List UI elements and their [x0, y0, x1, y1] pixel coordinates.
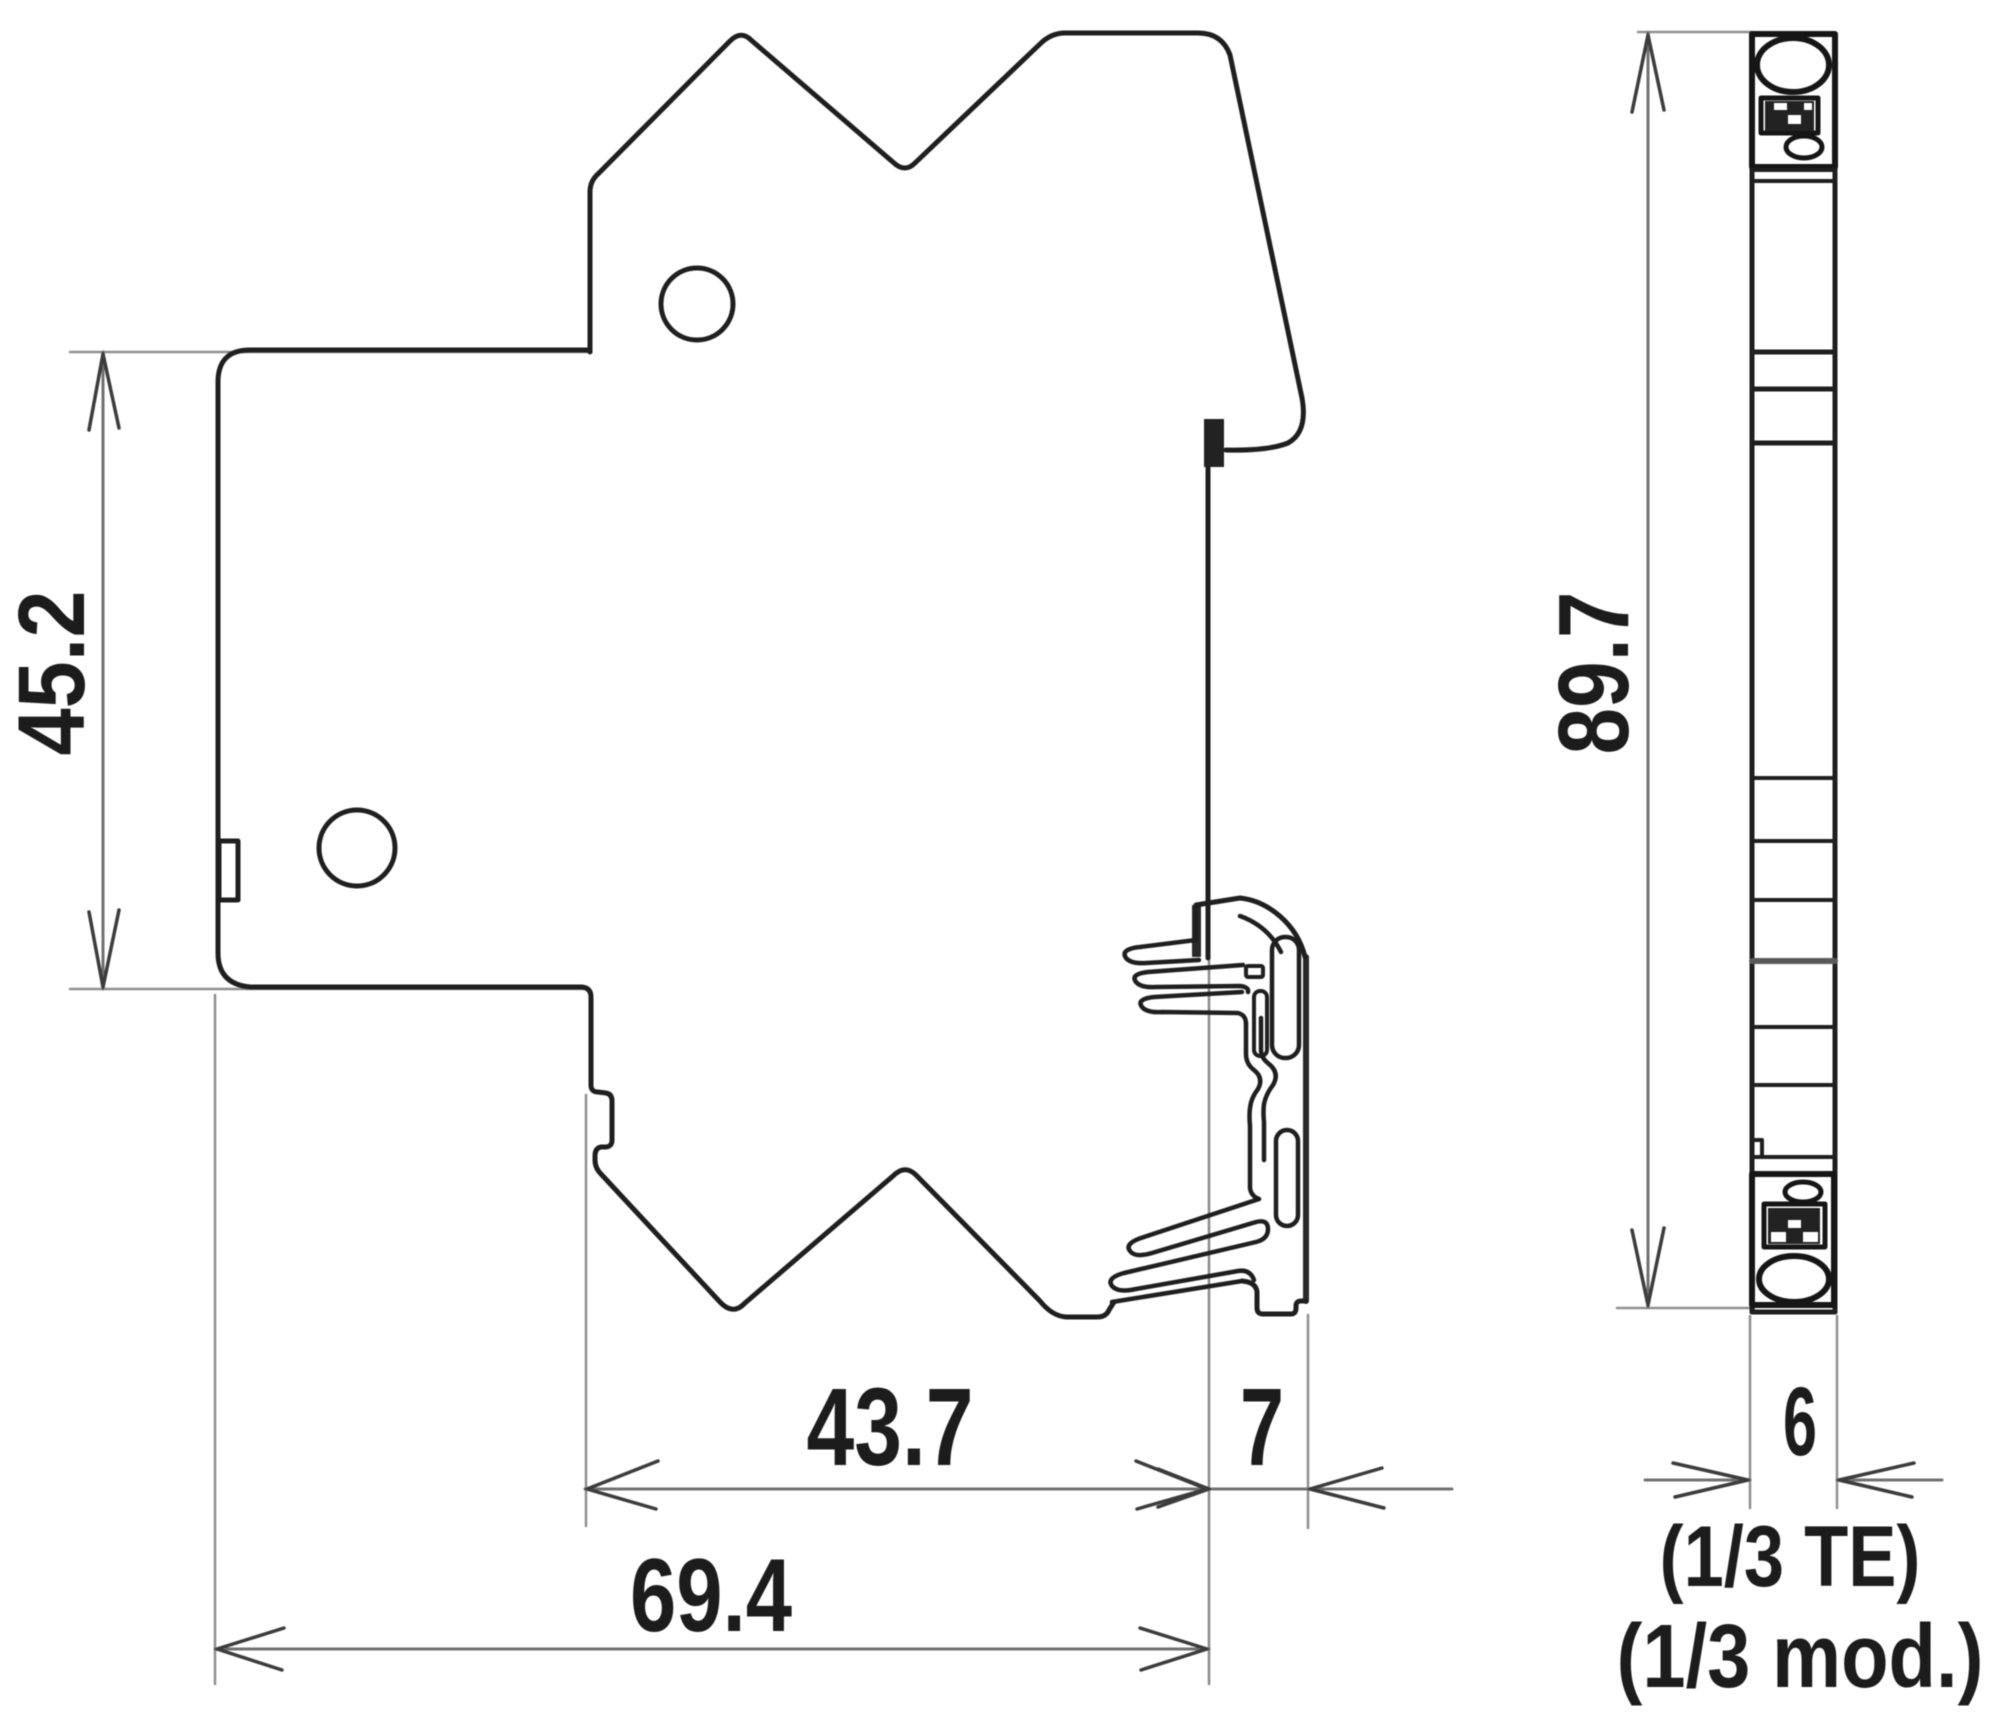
svg-text:7: 7: [1240, 1366, 1284, 1489]
svg-text:45.2: 45.2: [0, 591, 105, 756]
svg-text:43.7: 43.7: [807, 1366, 974, 1489]
svg-text:(1/3 mod.): (1/3 mod.): [1617, 1607, 1984, 1707]
svg-text:(1/3 TE): (1/3 TE): [1660, 1509, 1921, 1605]
svg-text:89.7: 89.7: [1538, 592, 1650, 755]
svg-text:69.4: 69.4: [630, 1538, 792, 1654]
svg-text:6: 6: [1783, 1367, 1817, 1476]
